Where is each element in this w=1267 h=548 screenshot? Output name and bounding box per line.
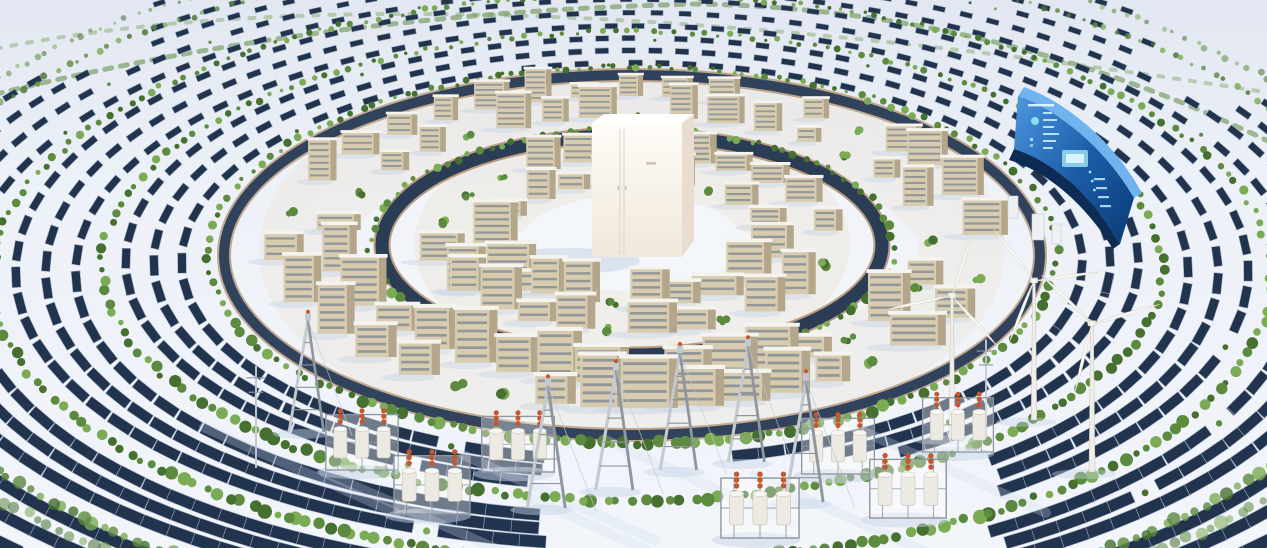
transformer-bank [317,408,399,479]
transformer-bank [793,412,875,483]
transformer-bank [914,392,994,461]
smart-city-render [0,0,1267,548]
transformer-bank [712,471,801,547]
render-viewport: 3D aerial render of a futuristic circula… [0,0,1267,548]
transformer-bank [861,453,948,528]
transformer-bank [385,449,471,523]
